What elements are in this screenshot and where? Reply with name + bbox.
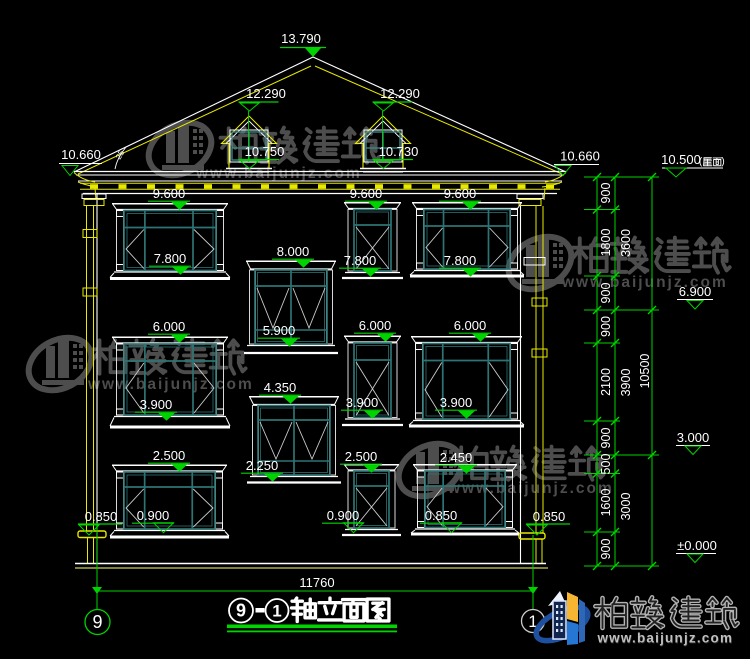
svg-text:9: 9 [92,612,102,632]
svg-text:2.500: 2.500 [345,449,378,464]
svg-text:11760: 11760 [299,575,334,590]
svg-text:0.850: 0.850 [533,509,566,524]
svg-text:3000: 3000 [619,493,633,521]
svg-text:0.900: 0.900 [137,508,170,523]
svg-text:1800: 1800 [599,229,613,257]
svg-text:6.000: 6.000 [454,318,487,333]
svg-text:10.660: 10.660 [560,149,600,164]
svg-text:0.900: 0.900 [327,508,360,523]
svg-text:12.290: 12.290 [246,86,286,101]
svg-text:7.800: 7.800 [444,253,477,268]
svg-text:10.730: 10.730 [379,144,419,159]
svg-text:3900: 3900 [619,369,633,397]
svg-text:900: 900 [599,283,613,304]
svg-text:1: 1 [272,602,281,621]
svg-text:7.800: 7.800 [154,251,187,266]
svg-text:0.850: 0.850 [425,508,458,523]
svg-text:500: 500 [599,454,613,475]
svg-text:0.850: 0.850 [85,509,118,524]
svg-text:2.500: 2.500 [153,448,186,463]
svg-text:13.790: 13.790 [281,31,321,46]
svg-text:9.600: 9.600 [350,186,383,201]
svg-text:10500: 10500 [638,354,652,389]
svg-text:900: 900 [599,183,613,204]
svg-text:2.450: 2.450 [440,450,473,465]
svg-text:6.000: 6.000 [359,318,392,333]
svg-text:9: 9 [236,601,246,621]
svg-text:4.350: 4.350 [264,380,297,395]
svg-text:10.500: 10.500 [661,152,701,167]
svg-text:www.baijunjz.com: www.baijunjz.com [447,480,614,497]
svg-text:10.750: 10.750 [245,144,285,159]
svg-text:7.800: 7.800 [344,253,377,268]
svg-text:9.600: 9.600 [153,186,186,201]
svg-text:6.000: 6.000 [153,319,186,334]
svg-text:±0.000: ±0.000 [677,538,717,553]
svg-text:): ) [721,157,724,168]
svg-text:9.600: 9.600 [444,186,477,201]
svg-text:www.baijunjz.com: www.baijunjz.com [596,631,733,646]
svg-text:www.baijunjz.com: www.baijunjz.com [195,165,362,182]
svg-text:3.900: 3.900 [440,395,473,410]
svg-text:3.900: 3.900 [346,395,379,410]
svg-text:900: 900 [599,428,613,449]
svg-text:5.900: 5.900 [263,323,296,338]
svg-text:10.660: 10.660 [61,147,101,162]
svg-text:8.000: 8.000 [277,244,310,259]
svg-text:3.900: 3.900 [140,397,173,412]
svg-text:2.250: 2.250 [246,458,279,473]
svg-text:www.baijunjz.com: www.baijunjz.com [87,376,254,393]
svg-text:6.900: 6.900 [679,284,712,299]
svg-text:12.290: 12.290 [380,86,420,101]
svg-text:2100: 2100 [599,368,613,396]
svg-text:900: 900 [599,316,613,337]
svg-text:900: 900 [599,539,613,560]
svg-text:1600: 1600 [599,489,613,517]
svg-text:3600: 3600 [619,229,633,257]
svg-text:3.000: 3.000 [677,430,710,445]
